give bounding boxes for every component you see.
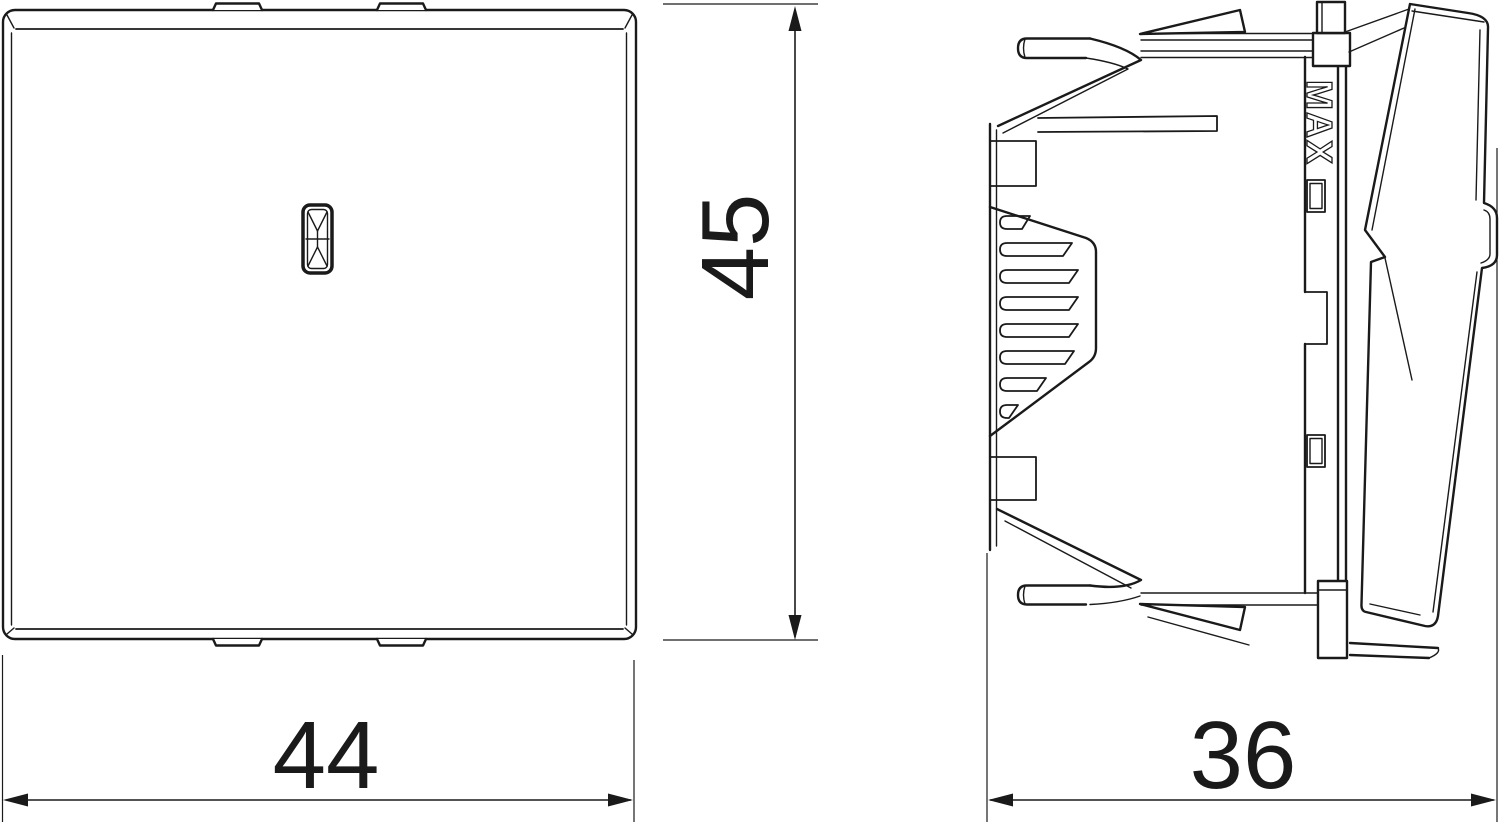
mounting-tab — [213, 4, 262, 11]
arrowhead — [988, 794, 1013, 807]
mounting-tab — [213, 639, 262, 646]
cover-plate — [3, 10, 636, 639]
bottom-mounting-claw — [997, 509, 1141, 605]
dimension-drawing: MAX 45 44 — [0, 0, 1500, 822]
internal-shelf — [1038, 116, 1217, 132]
arrowhead — [608, 794, 633, 807]
mounting-tab — [377, 639, 426, 646]
dimension-width: 44 — [3, 655, 635, 822]
side-view: MAX — [990, 2, 1497, 658]
depth-dimension-label: 36 — [1190, 702, 1297, 809]
max-marking-label: MAX — [1299, 80, 1340, 166]
technical-drawing-page: MAX 45 44 — [0, 0, 1500, 822]
bottom-latch-spike — [1140, 604, 1245, 630]
height-dimension-label: 45 — [682, 194, 789, 301]
top-latch-spike — [1140, 10, 1245, 34]
indicator-window — [303, 205, 332, 273]
dimension-height: 45 — [663, 4, 818, 640]
rocker — [1345, 4, 1497, 658]
arrowhead — [789, 6, 802, 31]
arrowhead — [1471, 794, 1496, 807]
front-view — [3, 4, 636, 646]
bottom-clip-block — [1318, 581, 1347, 658]
mounting-tab — [377, 4, 426, 11]
rocker-outline — [1361, 4, 1497, 626]
width-dimension-label: 44 — [273, 702, 380, 809]
top-clip-block — [1317, 2, 1345, 33]
vent-slots — [990, 207, 1096, 436]
top-clip-base — [1313, 33, 1350, 66]
housing-step — [1305, 292, 1327, 344]
arrowhead — [789, 615, 802, 640]
top-mounting-claw — [998, 39, 1141, 134]
arrowhead — [3, 794, 28, 807]
